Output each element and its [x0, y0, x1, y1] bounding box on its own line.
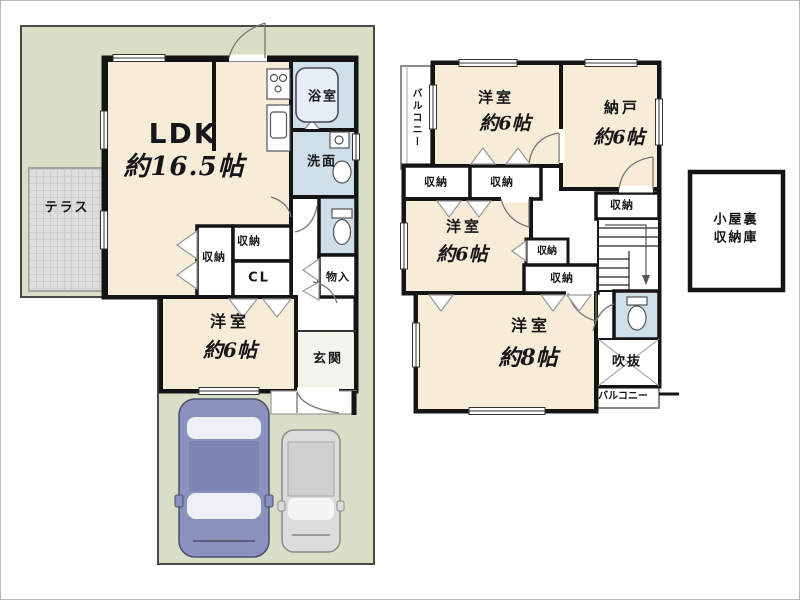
- kitchen-counter-icon: [267, 69, 290, 151]
- label-ldk-size: 約16.5帖: [123, 154, 244, 180]
- floorplan-drawing: [1, 1, 800, 600]
- toilet-icon-2f: [627, 297, 647, 330]
- stairs: [598, 219, 659, 291]
- label-washroom: 洗面: [307, 156, 337, 169]
- label-storage-b-1f: 収納: [237, 236, 261, 247]
- label-balcony-se: バルコニー: [598, 392, 648, 402]
- toilet-icon-1f: [332, 209, 352, 245]
- label-attic-line1: 小屋裏: [713, 214, 758, 227]
- label-bedroom1f-size: 約6帖: [203, 340, 257, 360]
- label-ldk-name: LDK: [149, 120, 218, 148]
- label-storeroom-name: 納戸: [604, 101, 640, 116]
- label-bedroom2f-top-size: 約6帖: [479, 115, 530, 134]
- label-bedroom2f-bottom-size: 約8帖: [498, 347, 557, 369]
- label-storeroom-size: 約6帖: [593, 129, 644, 148]
- label-storage-d-2f: 収納: [537, 247, 557, 257]
- label-void: 吹抜: [612, 356, 642, 369]
- label-bedroom2f-bottom-name: 洋室: [511, 318, 551, 334]
- label-bedroom2f-mid-size: 約6帖: [436, 246, 487, 265]
- label-bathroom: 浴室: [308, 91, 338, 104]
- label-bedroom2f-top-name: 洋室: [478, 91, 514, 106]
- car-gray: [278, 430, 344, 552]
- label-storage-b-2f: 収納: [490, 177, 514, 188]
- label-bedroom2f-mid-name: 洋室: [446, 220, 482, 235]
- label-entrance: 玄関: [313, 353, 343, 366]
- label-terrace: テラス: [45, 202, 90, 215]
- label-balcony-nw: バルコニー: [410, 88, 420, 148]
- label-storage-e-2f: 収納: [550, 273, 574, 284]
- label-closet-cl: CL: [248, 272, 270, 285]
- terrace: [29, 168, 106, 291]
- car-blue: [175, 399, 273, 557]
- floorplan-image: LDK 約16.5帖 テラス 浴室 洗面 収納 収納 CL 物入 洋室 約6帖 …: [0, 0, 800, 600]
- label-attic-line2: 収納庫: [713, 232, 758, 245]
- label-storage-a-2f: 収納: [424, 177, 448, 188]
- label-storage-a-1f: 収納: [202, 252, 226, 263]
- entrance-porch: [271, 388, 356, 416]
- label-monoire: 物入: [326, 272, 350, 283]
- label-storage-c-2f: 収納: [610, 200, 634, 211]
- label-bedroom1f-name: 洋室: [210, 314, 250, 330]
